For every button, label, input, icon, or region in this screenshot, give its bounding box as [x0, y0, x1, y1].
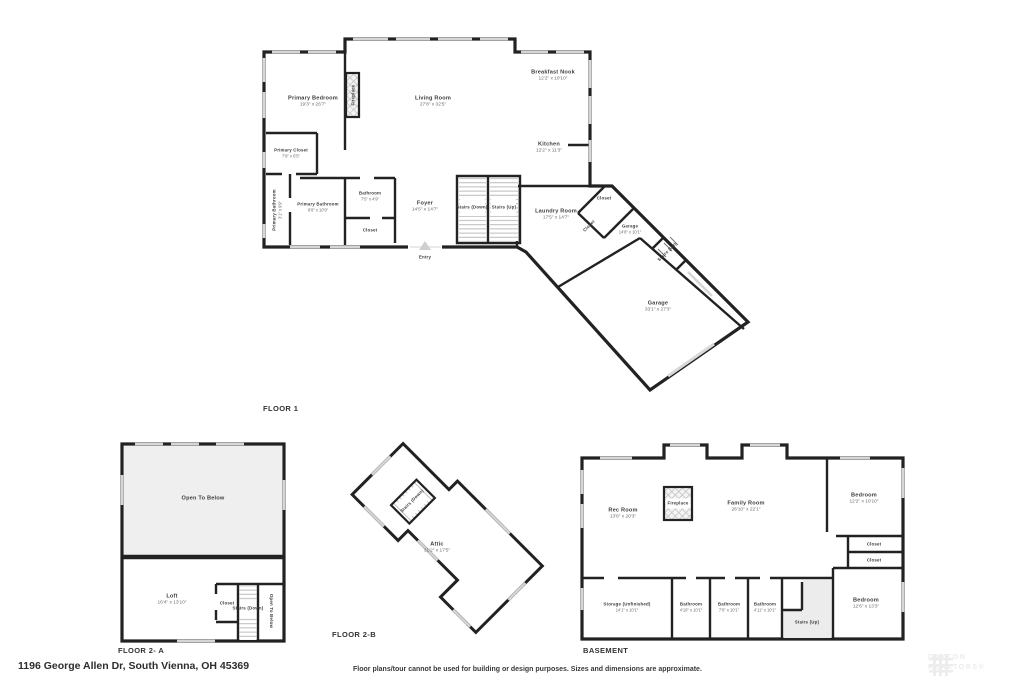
- room-label-attic: Attic 31'2" x 17'5": [424, 541, 450, 554]
- room-label-rec-room: Rec Room 13'6" x 20'3": [608, 507, 637, 520]
- basement-door-gap-1: [604, 574, 618, 582]
- room-label-bathroom1: Bathroom 4'10" x 10'1": [680, 601, 702, 612]
- floor2a-plan: [122, 444, 284, 641]
- floor1-title: FLOOR 1: [263, 404, 298, 413]
- floor2b-title: FLOOR 2-B: [332, 630, 376, 639]
- basement-door-gap-4: [760, 574, 770, 582]
- room-label-bedroom-bottom: Bedroom 12'6" x 13'3": [853, 597, 879, 610]
- basement-stairs-notch: [784, 580, 803, 609]
- room-label-closet-f1: Closet: [363, 227, 378, 233]
- basement-door-gap-3: [725, 574, 735, 582]
- room-label-open-to-below-side: Open To Below: [268, 594, 274, 628]
- disclaimer-text: Floor plans/tour cannot be used for buil…: [353, 666, 702, 673]
- room-label-primary-bathroom: Primary Bathroom 8'8" x 10'9": [297, 201, 339, 212]
- room-label-stairs-down-f2a: Stairs (Down): [233, 605, 264, 611]
- room-label-fireplace-f1: Fireplace: [350, 84, 356, 105]
- room-label-storage: Storage (Unfinished) 14'1" x 10'1": [603, 601, 650, 612]
- room-label-primary-closet: Primary Closet 7'9" x 6'5": [274, 147, 308, 158]
- realtor-logo-icon: [928, 653, 954, 677]
- room-label-closet-top: Closet: [597, 195, 612, 201]
- room-label-closet2-basement: Closet: [867, 557, 882, 563]
- room-label-closet1-basement: Closet: [867, 541, 882, 547]
- room-label-open-to-below: Open To Below: [182, 496, 225, 503]
- room-label-loft: Loft 16'4" x 13'10": [158, 593, 187, 606]
- room-label-primary-bathroom-small: Primary Bathroom 3'1" x 9'9": [271, 189, 282, 231]
- room-label-stairs-down-f1: Stairs (Down): [457, 204, 488, 210]
- realtor-watermark: DAYTON REALTORS®: [928, 653, 985, 673]
- floor2b-outer-walls: [345, 435, 542, 632]
- basement-title: BASEMENT: [583, 646, 628, 655]
- room-label-bedroom-top: Bedroom 12'2" x 10'10": [850, 492, 879, 505]
- entry-label: Entry: [419, 254, 431, 260]
- room-label-foyer: Foyer 14'5" x 14'7": [412, 200, 438, 213]
- room-label-primary-bedroom: Primary Bedroom 19'3" x 26'7": [288, 95, 338, 108]
- room-label-family-room: Family Room 26'10" x 22'1": [727, 500, 764, 513]
- floor2a-title: FLOOR 2- A: [118, 646, 164, 655]
- room-label-bathroom3: Bathroom 4'11" x 10'1": [754, 601, 776, 612]
- room-label-laundry: Laundry Room 17'5" x 14'7": [535, 208, 577, 221]
- floor-plan-drawing: [0, 0, 1024, 682]
- room-label-kitchen: Kitchen 12'2" x 11'3": [536, 141, 562, 154]
- room-label-garage-small: Garage 14'8" x 10'1": [619, 223, 641, 234]
- floor-plan-page: Primary Bedroom 19'3" x 26'7" Fireplace …: [0, 0, 1024, 682]
- floor2b-plan: [345, 435, 542, 632]
- room-label-bathroom-f1: Bathroom 7'5" x 4'9": [359, 190, 381, 201]
- room-label-garage: Garage 33'1" x 27'3": [645, 300, 671, 313]
- floor1-plan: [264, 39, 748, 390]
- room-label-breakfast-nook: Breakfast Nook 12'2" x 10'10": [531, 69, 575, 82]
- basement-door-gap-2: [686, 574, 696, 582]
- property-address: 1196 George Allen Dr, South Vienna, OH 4…: [18, 660, 249, 672]
- room-label-fireplace-basement: Fireplace: [667, 500, 688, 506]
- room-label-stairs-up-basement: Stairs (Up): [795, 619, 819, 625]
- room-label-living-room: Living Room 27'8" x 32'5": [415, 95, 451, 108]
- room-label-bathroom2: Bathroom 7'0" x 10'1": [718, 601, 740, 612]
- room-label-stairs-up-f1: Stairs (Up): [492, 204, 516, 210]
